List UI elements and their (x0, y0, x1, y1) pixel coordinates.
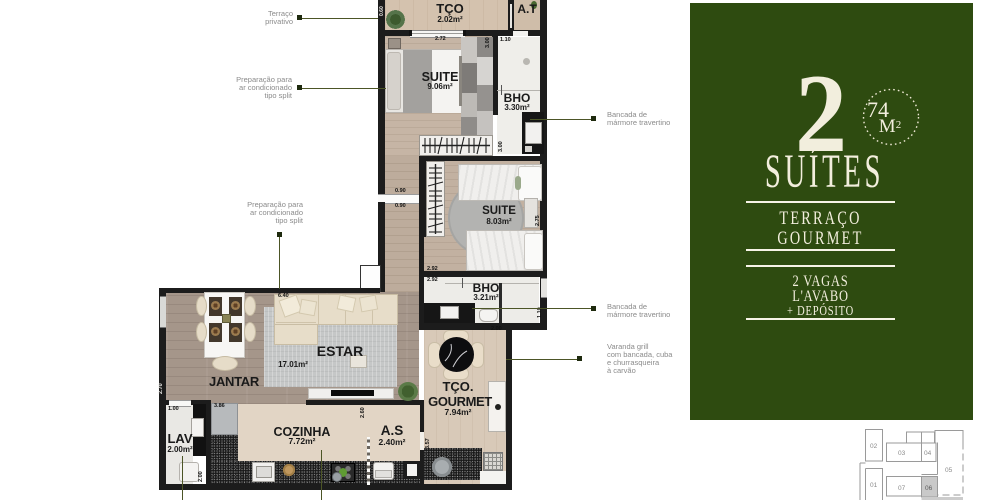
svg-text:03: 03 (898, 450, 906, 457)
svg-text:04: 04 (924, 450, 932, 457)
svg-text:02: 02 (870, 443, 878, 450)
svg-text:05: 05 (945, 467, 953, 474)
svg-text:06: 06 (925, 485, 933, 492)
svg-text:07: 07 (898, 485, 906, 492)
svg-text:01: 01 (870, 482, 878, 489)
